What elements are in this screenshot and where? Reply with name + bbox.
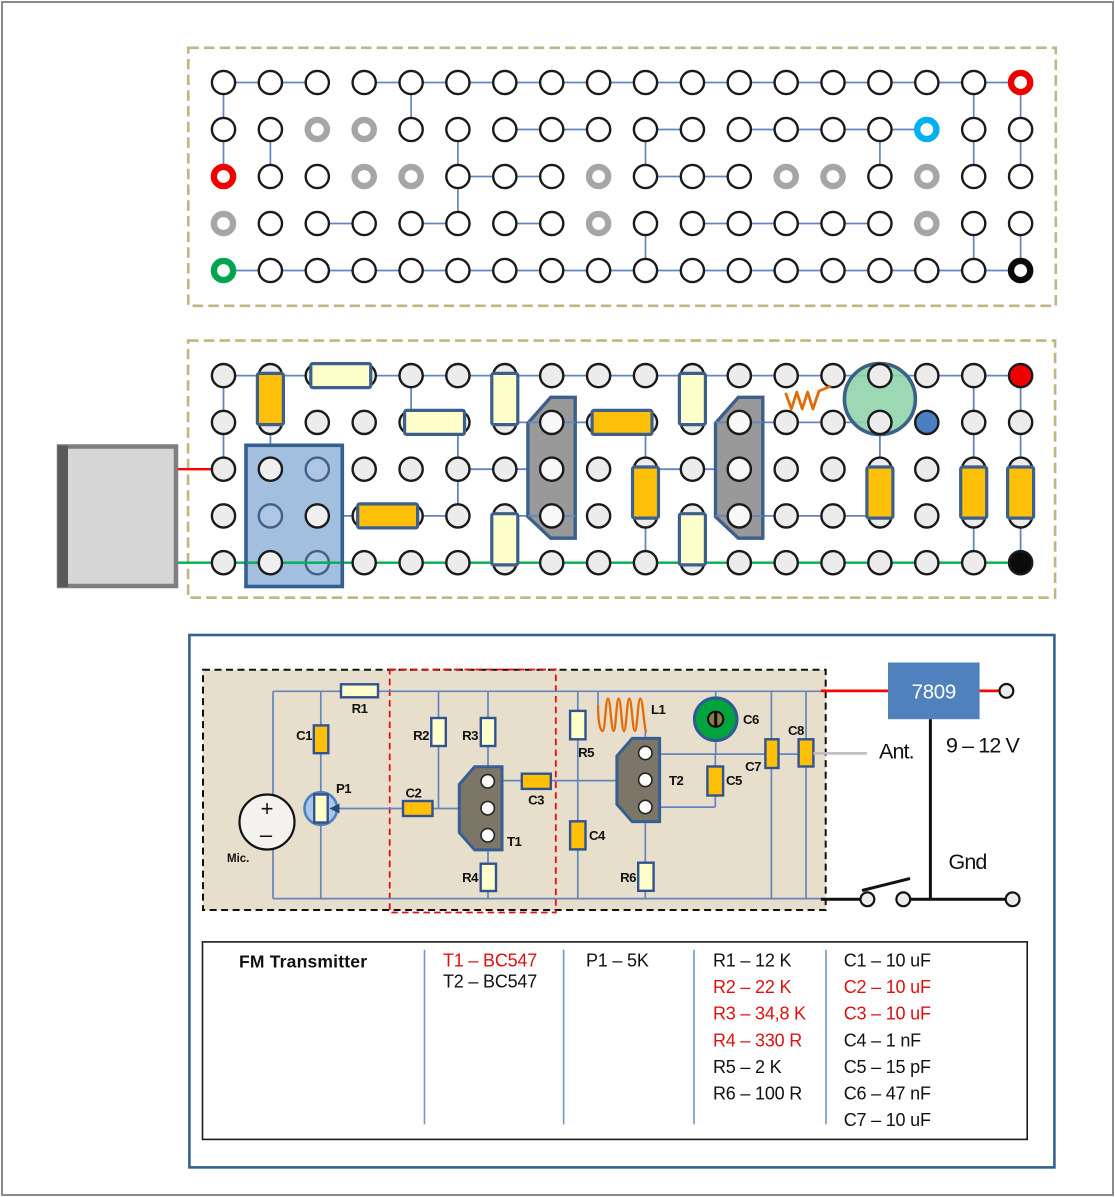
svg-text:C8: C8 xyxy=(788,723,804,738)
svg-text:R3: R3 xyxy=(462,728,478,743)
svg-text:Gnd: Gnd xyxy=(949,850,987,874)
svg-text:C7 – 10 uF: C7 – 10 uF xyxy=(844,1110,931,1130)
svg-text:C1: C1 xyxy=(296,728,312,743)
svg-text:R4: R4 xyxy=(462,870,479,885)
svg-text:C6: C6 xyxy=(743,712,759,727)
svg-text:R5 – 2 K: R5 – 2 K xyxy=(713,1057,782,1077)
svg-text:R6: R6 xyxy=(620,870,636,885)
svg-text:R4 – 330 R: R4 – 330 R xyxy=(713,1030,802,1050)
svg-text:7809: 7809 xyxy=(912,681,956,704)
svg-text:R1: R1 xyxy=(352,701,368,716)
svg-text:T1: T1 xyxy=(507,834,522,849)
svg-text:–: – xyxy=(260,822,273,847)
svg-text:C2: C2 xyxy=(406,786,422,801)
svg-text:FM Transmitter: FM Transmitter xyxy=(239,952,367,972)
svg-text:C1 – 10 uF: C1 – 10 uF xyxy=(844,951,931,971)
svg-text:C2 – 10 uF: C2 – 10 uF xyxy=(844,977,931,997)
svg-text:R5: R5 xyxy=(578,745,594,760)
svg-text:P1: P1 xyxy=(336,781,351,796)
svg-text:C6 – 47 nF: C6 – 47 nF xyxy=(844,1084,931,1104)
svg-text:Mic.: Mic. xyxy=(227,853,249,865)
svg-text:C3 – 10 uF: C3 – 10 uF xyxy=(844,1004,931,1024)
svg-text:C7: C7 xyxy=(745,759,761,774)
svg-text:R3 – 34,8 K: R3 – 34,8 K xyxy=(713,1004,806,1024)
svg-text:P1 – 5K: P1 – 5K xyxy=(586,951,649,971)
svg-text:T2 – BC547: T2 – BC547 xyxy=(443,972,537,992)
svg-text:T1 – BC547: T1 – BC547 xyxy=(443,951,537,971)
svg-text:R1 – 12 K: R1 – 12 K xyxy=(713,951,791,971)
svg-text:L1: L1 xyxy=(651,702,666,717)
svg-text:R6 – 100 R: R6 – 100 R xyxy=(713,1084,802,1104)
svg-text:R2: R2 xyxy=(413,728,429,743)
svg-text:+: + xyxy=(261,796,274,821)
svg-text:C4: C4 xyxy=(589,828,606,843)
svg-text:9 – 12 V: 9 – 12 V xyxy=(946,734,1020,758)
svg-text:C5 – 15 pF: C5 – 15 pF xyxy=(844,1057,931,1077)
svg-text:Ant.: Ant. xyxy=(879,740,914,764)
svg-text:R2 – 22 K: R2 – 22 K xyxy=(713,977,791,997)
svg-text:C4 – 1 nF: C4 – 1 nF xyxy=(844,1030,921,1050)
svg-text:T2: T2 xyxy=(669,773,684,788)
svg-text:C5: C5 xyxy=(726,773,742,788)
svg-text:C3: C3 xyxy=(528,793,544,808)
